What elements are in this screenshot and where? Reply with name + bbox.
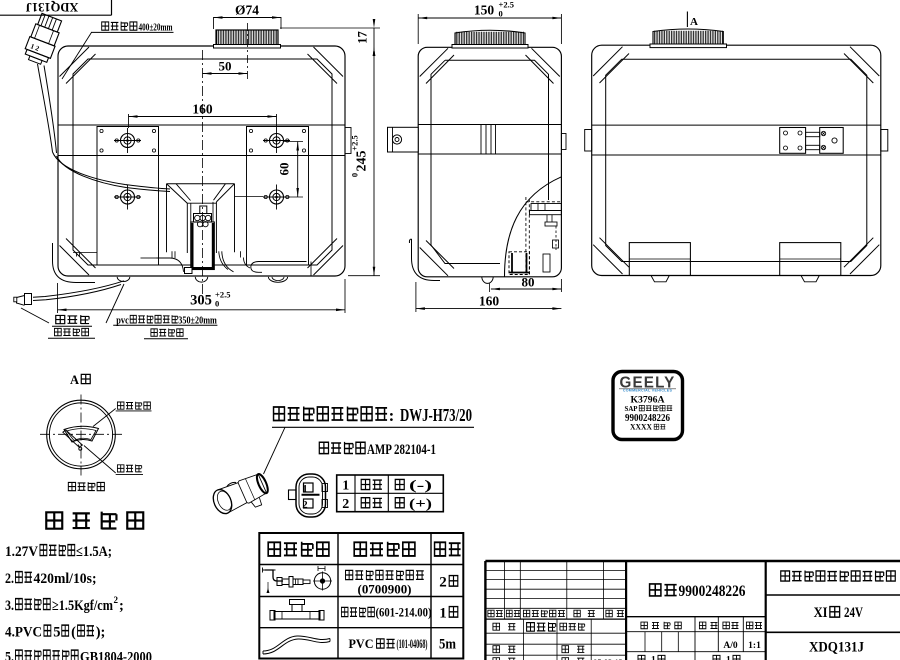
svg-text:350±20mm: 350±20mm <box>178 315 217 326</box>
svg-text::: : <box>389 406 395 425</box>
svg-text:(+): (+) <box>409 496 432 511</box>
svg-text:≤1.5A;: ≤1.5A; <box>76 544 112 560</box>
svg-text:160: 160 <box>192 102 213 117</box>
svg-text:GB1804-2000: GB1804-2000 <box>80 650 152 660</box>
svg-text:400±20mm: 400±20mm <box>139 22 173 34</box>
svg-text:AMP 282104-1: AMP 282104-1 <box>367 442 436 458</box>
svg-text:XDQ131J: XDQ131J <box>809 640 864 656</box>
svg-text:150: 150 <box>474 3 495 18</box>
svg-text:5: 5 <box>53 625 60 641</box>
svg-text:1: 1 <box>302 484 307 495</box>
svg-text:2: 2 <box>114 595 119 605</box>
svg-text:305: 305 <box>190 293 212 309</box>
svg-text:5m: 5m <box>439 637 456 653</box>
svg-text:COMMERCIAL VEHICLES: COMMERCIAL VEHICLES <box>623 389 673 393</box>
svg-text:2: 2 <box>439 575 447 591</box>
svg-text:5.: 5. <box>5 650 14 660</box>
svg-text:1.27V: 1.27V <box>5 544 38 560</box>
svg-text:);: ); <box>96 625 106 641</box>
svg-text:0: 0 <box>499 9 503 19</box>
svg-text:XDQ131J: XDQ131J <box>26 0 79 14</box>
svg-text:24V: 24V <box>844 605 863 621</box>
svg-text:2: 2 <box>302 500 307 511</box>
svg-text:PVC: PVC <box>349 636 374 651</box>
svg-text:;: ; <box>119 598 124 614</box>
svg-text:(-): (-) <box>409 478 432 493</box>
svg-text:(0700900): (0700900) <box>358 582 412 597</box>
svg-text:80: 80 <box>522 275 535 290</box>
svg-text:(601-214.00): (601-214.00) <box>376 606 432 620</box>
svg-text:17: 17 <box>356 31 370 44</box>
svg-text:XI: XI <box>814 605 828 621</box>
svg-text:160: 160 <box>479 294 500 309</box>
svg-text:3.: 3. <box>5 598 14 614</box>
svg-text:1: 1 <box>439 606 447 622</box>
svg-text:0: 0 <box>350 173 360 177</box>
svg-text:1: 1 <box>342 479 349 494</box>
svg-text:2.: 2. <box>5 571 14 587</box>
svg-text:A/0: A/0 <box>723 641 738 651</box>
svg-text:A: A <box>690 16 698 28</box>
svg-text:4.PVC: 4.PVC <box>5 625 42 641</box>
svg-text:2: 2 <box>342 497 349 512</box>
svg-text:420ml/10s;: 420ml/10s; <box>34 571 97 587</box>
svg-text:Ø74: Ø74 <box>235 3 259 18</box>
svg-text:1:1: 1:1 <box>748 641 761 651</box>
svg-text:XXXX: XXXX <box>630 422 653 432</box>
svg-text:A: A <box>70 373 79 387</box>
svg-text:50: 50 <box>219 59 232 74</box>
svg-text:60: 60 <box>277 163 292 176</box>
svg-text:SAP: SAP <box>625 404 638 413</box>
svg-text:1: 1 <box>651 656 656 660</box>
svg-text:+2.5: +2.5 <box>350 135 360 150</box>
svg-text:pvc: pvc <box>116 315 129 326</box>
svg-text:(: ( <box>71 625 76 641</box>
svg-text:245: 245 <box>355 151 370 172</box>
svg-text:0: 0 <box>215 299 219 309</box>
svg-text:≥1.5Kgf/cm: ≥1.5Kgf/cm <box>52 598 113 614</box>
svg-text:DWJ-H73/20: DWJ-H73/20 <box>400 405 472 425</box>
svg-text:(101-04068): (101-04068) <box>397 637 428 651</box>
svg-text:1: 1 <box>726 656 731 660</box>
svg-text:9900248226: 9900248226 <box>679 583 746 600</box>
